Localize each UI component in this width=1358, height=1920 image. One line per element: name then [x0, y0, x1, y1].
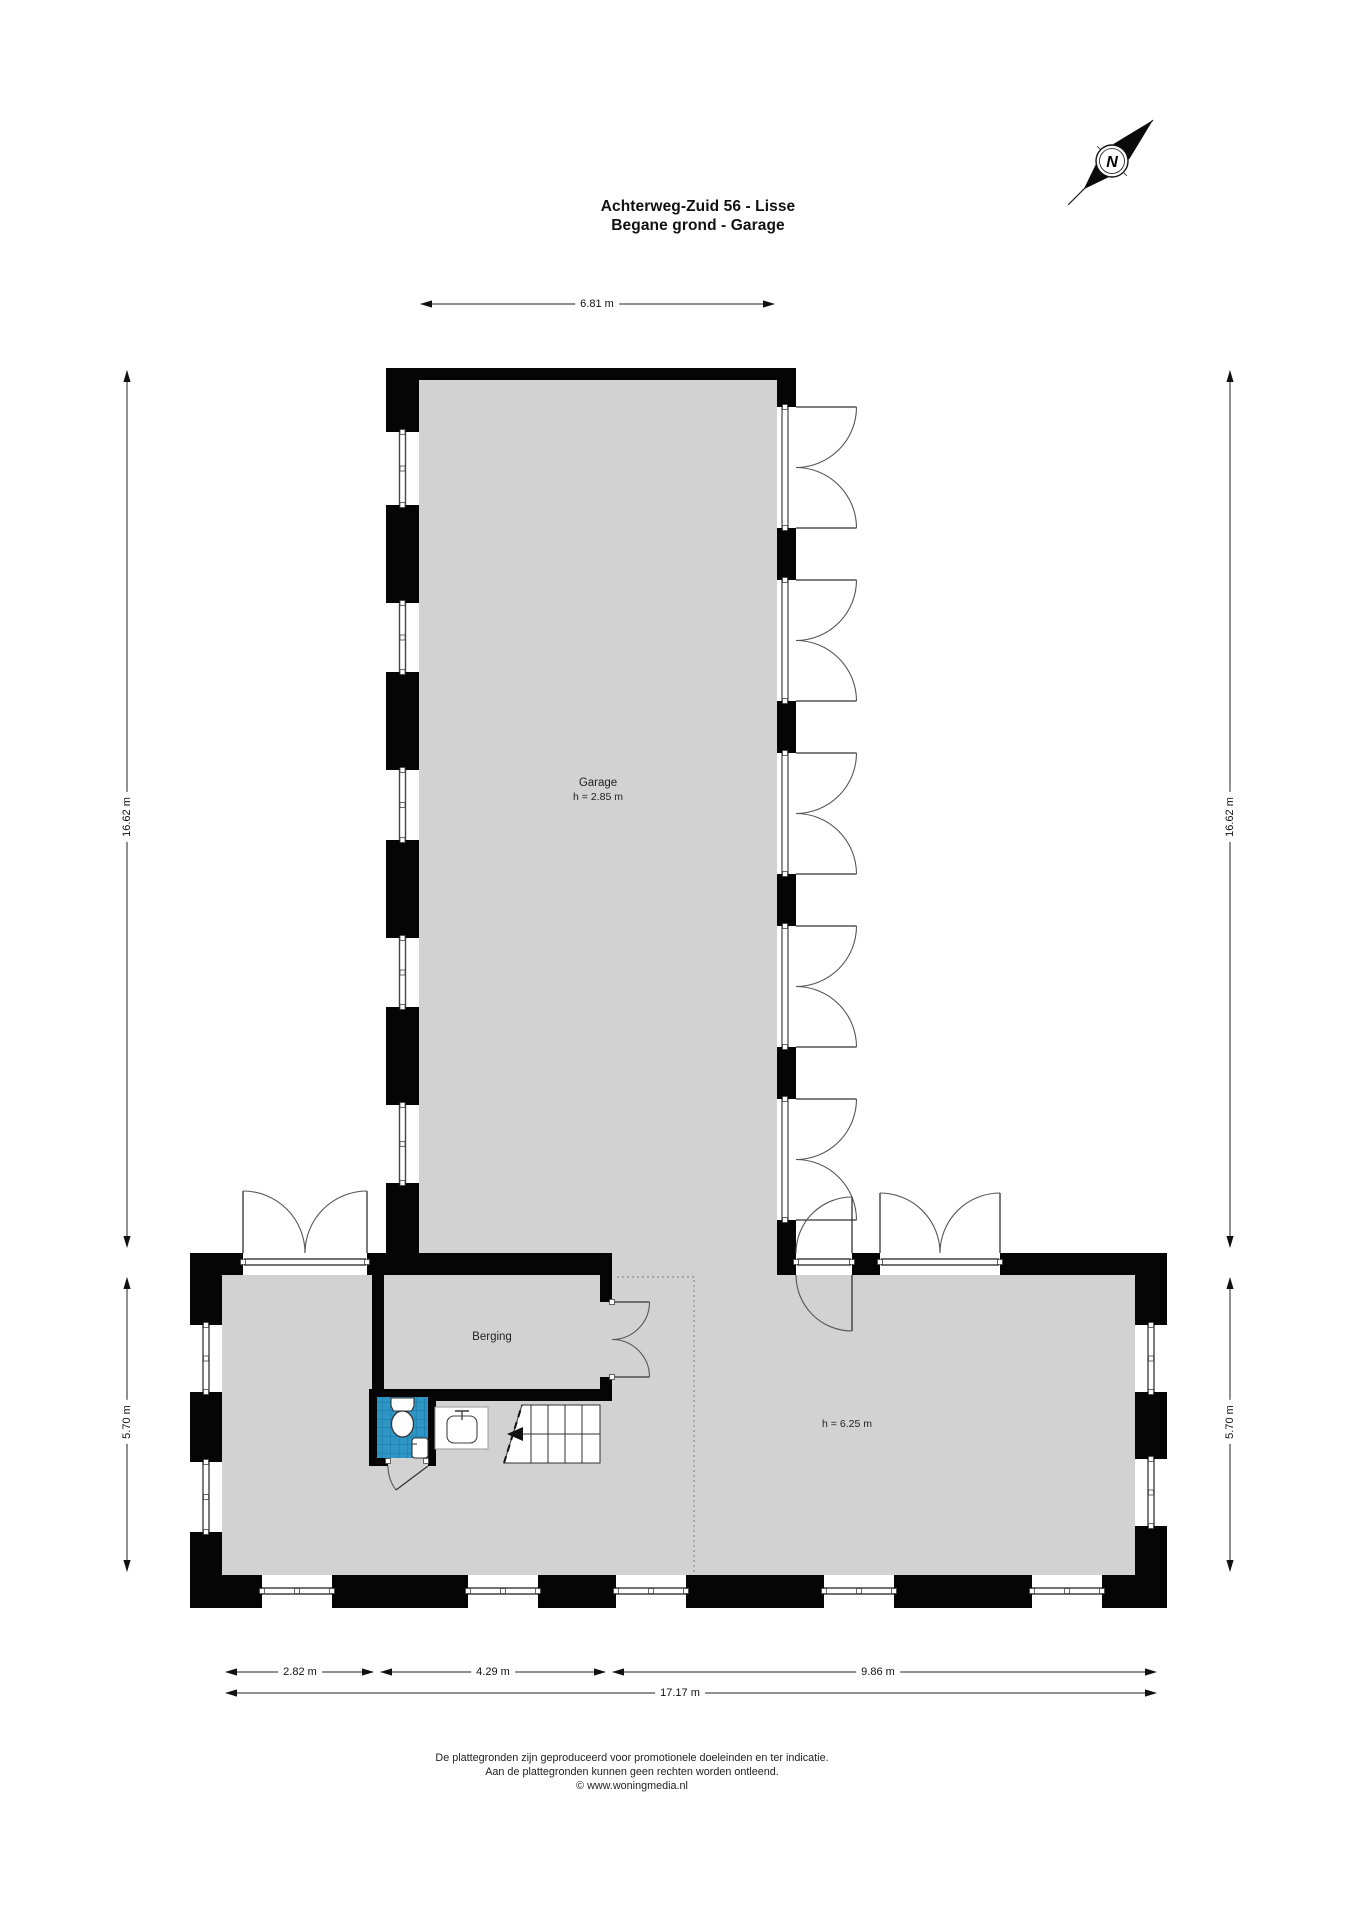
dimension-label-bottom-3: 9.86 m	[856, 1666, 900, 1678]
compass-n-label: N	[1106, 154, 1118, 171]
page-title: Achterweg-Zuid 56 - Lisse	[601, 198, 796, 216]
room-label-garage: Garage	[579, 777, 617, 789]
room-height-hall: h = 6.25 m	[822, 1418, 872, 1430]
page-subtitle: Begane grond - Garage	[611, 217, 785, 235]
dimension-label-bottom-total: 17.17 m	[655, 1687, 705, 1699]
dimension-label-left-upper: 16.62 m	[121, 792, 133, 842]
dimension-label-bottom-2: 4.29 m	[471, 1666, 515, 1678]
room-label-berging: Berging	[472, 1331, 512, 1343]
toilet-icon	[391, 1398, 414, 1437]
footer-line-1: De plattegronden zijn geproduceerd voor …	[435, 1752, 828, 1764]
room-height-garage: h = 2.85 m	[573, 791, 623, 803]
stairs	[504, 1405, 600, 1463]
floor-area	[222, 380, 1135, 1575]
compass-north-icon: N	[1053, 105, 1168, 220]
footer-line-3: © www.woningmedia.nl	[576, 1780, 688, 1792]
footer-line-2: Aan de plattegronden kunnen geen rechten…	[485, 1766, 779, 1778]
dimension-label-top-width: 6.81 m	[575, 298, 619, 310]
dimension-label-left-lower: 5.70 m	[121, 1400, 133, 1444]
corner-sink-icon	[412, 1438, 428, 1458]
dimension-label-right-lower: 5.70 m	[1224, 1400, 1236, 1444]
floorplan-page: N Achterweg-Zuid 56 - Lisse Begane grond…	[0, 0, 1358, 1920]
dimension-label-right-upper: 16.62 m	[1224, 792, 1236, 842]
dimension-label-bottom-1: 2.82 m	[278, 1666, 322, 1678]
toilet-room	[377, 1397, 428, 1458]
floor-plan-svg: N	[0, 0, 1358, 1920]
washbasin-icon	[435, 1407, 488, 1449]
